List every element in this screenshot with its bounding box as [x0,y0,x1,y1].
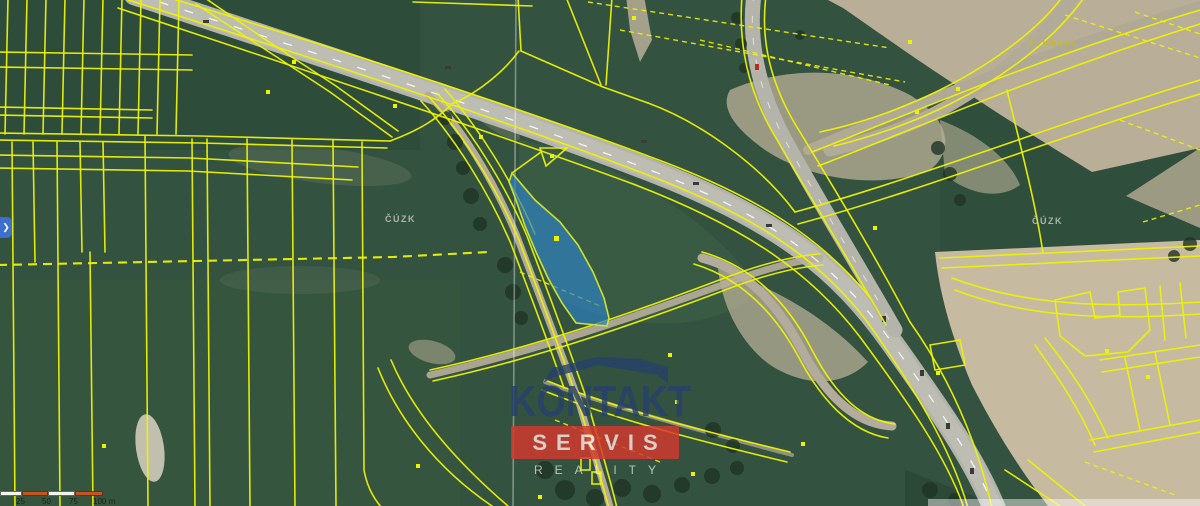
expand-panel-button[interactable]: ❯ [0,217,12,238]
red-car [755,64,759,70]
scale-segment [22,491,48,496]
scale-label: 50 [42,497,51,506]
scale-segment [75,491,103,496]
scale-segment [48,491,75,496]
scale-label: 75 [69,497,78,506]
place-label: Za lukami [1028,38,1074,48]
scale-label: 25 [16,497,25,506]
parcel-marker [554,236,559,241]
cadastral-map-viewport[interactable]: ČÚZK ČÚZK Za lukami KONTAKT SERVIS REALI… [0,0,1200,506]
cuzk-watermark-left: ČÚZK [385,213,416,224]
scale-segment [0,491,22,496]
aerial-imagery-layer [0,0,1200,506]
cadastral-map-canvas[interactable]: ČÚZK ČÚZK Za lukami [0,0,1200,506]
scale-label: 100 m [93,497,115,506]
cuzk-watermark-right: ČÚZK [1032,215,1063,226]
attribution-strip [928,499,1200,506]
scale-bar: 25 50 75 100 m [0,491,130,506]
chevron-right-icon: ❯ [2,222,10,232]
